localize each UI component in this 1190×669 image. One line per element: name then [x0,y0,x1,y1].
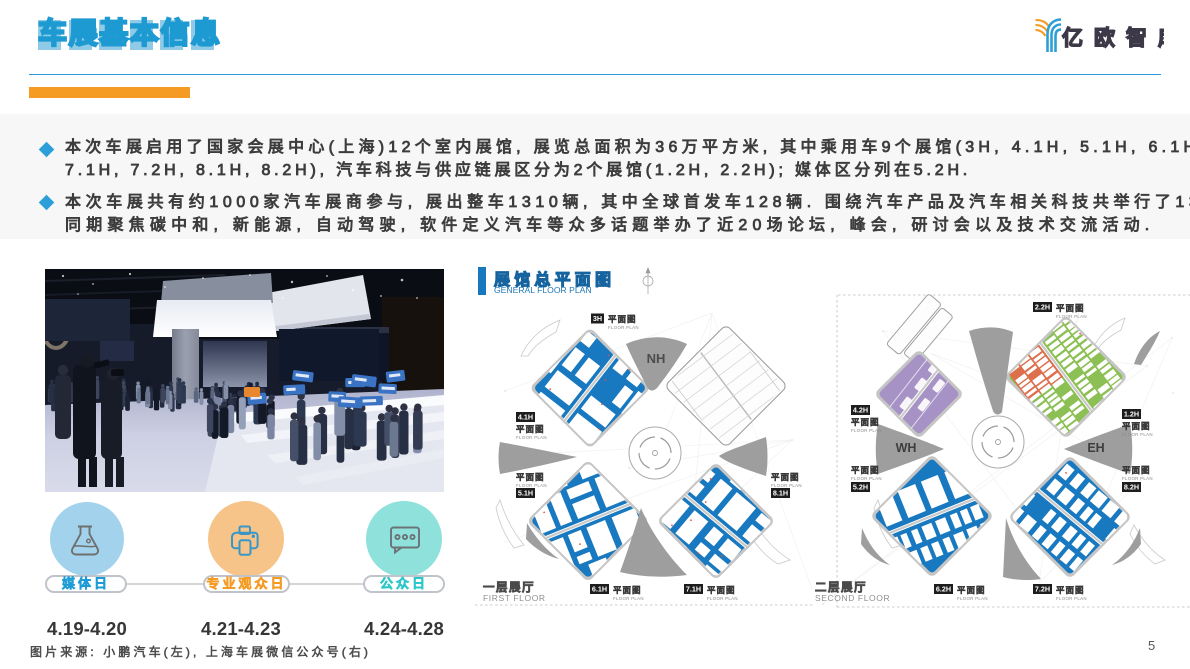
svg-text:FLOOR PLAN: FLOOR PLAN [608,325,639,330]
svg-text:平面图: 平面图 [957,585,986,595]
svg-text:4.2H: 4.2H [853,406,868,415]
svg-text:6.2H: 6.2H [936,585,951,594]
svg-text:7.2H: 7.2H [1035,585,1050,594]
svg-text:8.2H: 8.2H [1124,483,1139,492]
svg-text:5.2H: 5.2H [853,483,868,492]
svg-text:FLOOR PLAN: FLOOR PLAN [771,483,802,488]
svg-text:平面图: 平面图 [1056,585,1085,595]
svg-text:FLOOR PLAN: FLOOR PLAN [516,435,547,440]
svg-text:EH: EH [1087,441,1104,455]
svg-text:FLOOR PLAN: FLOOR PLAN [613,596,644,601]
svg-text:FLOOR PLAN: FLOOR PLAN [1122,432,1153,437]
svg-text:平面图: 平面图 [851,417,880,427]
svg-text:4.1H: 4.1H [518,413,533,422]
svg-text:平面图: 平面图 [851,465,880,475]
svg-text:6.1H: 6.1H [592,585,607,594]
svg-text:7.1H: 7.1H [686,585,701,594]
svg-text:平面图: 平面图 [608,314,637,324]
svg-text:平面图: 平面图 [613,585,642,595]
svg-text:1.2H: 1.2H [1124,410,1139,419]
svg-text:NH: NH [647,351,666,366]
svg-text:8.1H: 8.1H [773,489,788,498]
svg-text:WH: WH [896,441,917,455]
svg-text:5.1H: 5.1H [518,489,533,498]
svg-text:平面图: 平面图 [516,424,545,434]
svg-text:平面图: 平面图 [1122,465,1151,475]
svg-text:FLOOR PLAN: FLOOR PLAN [851,476,882,481]
svg-text:平面图: 平面图 [516,472,545,482]
svg-text:FLOOR PLAN: FLOOR PLAN [1056,314,1087,319]
svg-text:平面图: 平面图 [1056,303,1085,313]
svg-text:亿欧智库: 亿欧智库 [1062,26,1164,50]
svg-text:SECOND FLOOR: SECOND FLOOR [815,593,890,603]
svg-text:平面图: 平面图 [1122,421,1151,431]
svg-text:FLOOR PLAN: FLOOR PLAN [957,596,988,601]
svg-text:FLOOR PLAN: FLOOR PLAN [707,596,738,601]
svg-text:FLOOR PLAN: FLOOR PLAN [1122,476,1153,481]
svg-text:平面图: 平面图 [771,472,800,482]
svg-text:3H: 3H [593,314,602,323]
svg-text:FLOOR PLAN: FLOOR PLAN [851,428,882,433]
svg-text:2.2H: 2.2H [1035,303,1050,312]
svg-text:FLOOR PLAN: FLOOR PLAN [516,483,547,488]
svg-text:FIRST FLOOR: FIRST FLOOR [483,593,546,603]
svg-text:FLOOR PLAN: FLOOR PLAN [1056,596,1087,601]
svg-text:平面图: 平面图 [707,585,736,595]
